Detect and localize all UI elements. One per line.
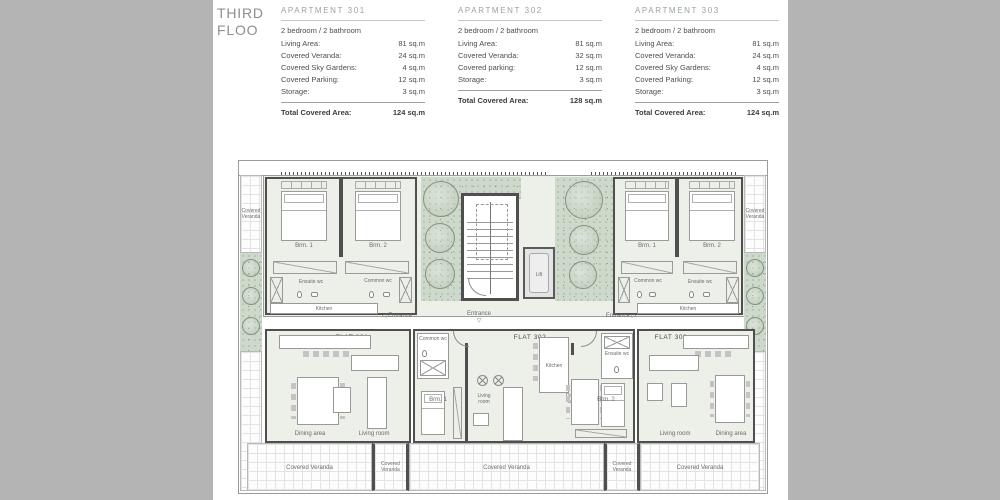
spec-row: Living Area:81 sq.m — [281, 38, 425, 50]
veranda-label: Veranda — [745, 214, 765, 220]
staircase — [461, 193, 519, 301]
covered-veranda-label: Veranda — [607, 467, 637, 473]
spec-row: Living Area:81 sq.m — [458, 38, 602, 50]
dining-area-label: Dining area — [707, 431, 755, 438]
shower — [399, 277, 412, 303]
spec-value: 81 sq.m — [398, 38, 425, 50]
common-wc-label: Common wc — [629, 278, 667, 284]
ensuite-wc-label: Ensuite wc — [285, 279, 337, 285]
arrow-right-icon: ▷ — [632, 313, 637, 319]
dining-chairs — [746, 381, 750, 417]
bar-stools — [303, 351, 351, 357]
headboard-shelf — [281, 181, 327, 189]
bedroom1-label: Brm. 1 — [617, 243, 677, 250]
toilet-icon — [614, 366, 619, 373]
bed — [625, 191, 669, 241]
center-left-sky-garden — [421, 177, 461, 301]
plant-icon — [493, 375, 504, 386]
spec-row: Covered Parking:12 sq.m — [281, 74, 425, 86]
spec-row: Storage:3 sq.m — [635, 86, 779, 98]
spec-label: Living Area: — [635, 38, 674, 50]
flat303-bedroom-wing: Brm. 1 Brm. 2 Common wc Ensuite wc Kitch… — [613, 177, 743, 315]
sofa — [351, 355, 399, 371]
spec-label: Covered Veranda: — [281, 50, 341, 62]
wardrobe — [453, 387, 462, 439]
bar-stools — [695, 351, 735, 357]
spec-value: 3 sq.m — [402, 86, 425, 98]
wardrobe — [345, 261, 409, 274]
dining-area-label: Dining area — [275, 431, 345, 438]
sink-icon — [311, 292, 318, 297]
floor-title-line1: THIRD — [217, 5, 264, 22]
left-veranda-top: Covered Veranda — [240, 175, 262, 253]
floor-title-line2: FLOO — [217, 22, 264, 39]
tree-icon — [425, 259, 455, 289]
spec-value: 12 sq.m — [398, 74, 425, 86]
wardrobe — [575, 429, 627, 438]
sofa — [503, 387, 523, 441]
floor-plan: Covered Veranda Covered Veranda — [238, 160, 768, 494]
spec-value: 81 sq.m — [575, 38, 602, 50]
door-swing — [468, 278, 486, 296]
spec-label: Covered Sky Gardens: — [281, 62, 357, 74]
wall — [675, 179, 679, 257]
spec-row: Covered Veranda:32 sq.m — [458, 50, 602, 62]
entrance-301: ◁ Entrance — [367, 313, 427, 320]
spec-label: Covered Parking: — [281, 74, 339, 86]
bed — [281, 191, 327, 241]
dining-table — [715, 375, 745, 423]
bed — [355, 191, 401, 241]
toilet-icon — [689, 291, 694, 298]
spec-label: Covered Parking: — [635, 74, 693, 86]
spec-value: 12 sq.m — [752, 74, 779, 86]
apartment-card-303: APARTMENT 3032 bedroom / 2 bathroomLivin… — [635, 6, 779, 119]
spec-value: 4 sq.m — [402, 62, 425, 74]
covered-veranda-label: Covered Veranda — [410, 465, 603, 472]
wardrobe — [273, 261, 337, 274]
spec-label: Covered Sky Gardens: — [635, 62, 711, 74]
spec-value: 24 sq.m — [752, 50, 779, 62]
tree-icon — [423, 181, 459, 217]
shower — [270, 277, 283, 303]
living-room-label: Living room — [647, 431, 703, 438]
tree-icon — [425, 223, 455, 253]
plant-icon — [477, 375, 488, 386]
veranda-label: Veranda — [241, 214, 261, 220]
apartment-card-301: APARTMENT 3012 bedroom / 2 bathroomLivin… — [281, 6, 425, 119]
spec-value: 24 sq.m — [398, 50, 425, 62]
entrance-302: Entrance ▽ — [451, 311, 507, 324]
wardrobe — [683, 261, 737, 274]
apartment-title: APARTMENT 302 — [458, 6, 602, 21]
spec-label: Storage: — [458, 74, 486, 86]
spec-label: Living Area: — [458, 38, 497, 50]
armchair — [647, 383, 663, 401]
spec-total-label: Total Covered Area: — [281, 107, 351, 119]
center-right-sky-garden — [555, 177, 615, 301]
spec-total-value: 128 sq.m — [570, 95, 602, 107]
bedroom1-label: Brm. 1 — [274, 243, 334, 250]
common-wc-label: Common wc — [418, 336, 448, 342]
spec-value: 3 sq.m — [756, 86, 779, 98]
spec-total-value: 124 sq.m — [747, 107, 779, 119]
left-sky-garden — [240, 253, 262, 351]
spec-label: Storage: — [281, 86, 309, 98]
spec-total-row: Total Covered Area:124 sq.m — [635, 102, 779, 119]
sofa — [367, 377, 387, 429]
tree-icon — [242, 287, 260, 305]
kitchen-label: Kitchen — [637, 306, 739, 312]
headboard-shelf — [625, 181, 669, 189]
veranda-302: Covered Veranda — [409, 443, 604, 491]
tree-icon — [242, 259, 260, 277]
spec-label: Living Area: — [281, 38, 320, 50]
spec-value: 81 sq.m — [752, 38, 779, 50]
covered-veranda-label: Covered Veranda — [248, 465, 371, 472]
tree-icon — [569, 261, 597, 289]
spec-row: Covered parking:12 sq.m — [458, 62, 602, 74]
entrance-303: Entrance ▷ — [591, 313, 651, 320]
wall — [465, 343, 468, 441]
apartment-subtitle: 2 bedroom / 2 bathroom — [635, 21, 779, 38]
viewer-background: { "page": { "title_line1": "THIRD", "tit… — [0, 0, 1000, 500]
arrow-left-icon: ◁ — [382, 313, 387, 319]
spec-value: 3 sq.m — [579, 74, 602, 86]
ensuite-wc-label: Ensuite wc — [675, 279, 725, 285]
tree-icon — [242, 317, 260, 335]
tree-icon — [565, 181, 603, 219]
shower — [726, 277, 739, 303]
bar-stools — [533, 343, 538, 381]
sink-icon — [703, 292, 710, 297]
covered-veranda-label: Covered Veranda — [641, 465, 759, 472]
bedroom2-label: Brm. 2 — [583, 397, 629, 404]
wardrobe — [621, 261, 673, 274]
coffee-table — [333, 387, 351, 413]
kitchen-label: Kitchen — [529, 363, 579, 369]
door-swing — [581, 331, 597, 347]
spec-row: Covered Parking:12 sq.m — [635, 74, 779, 86]
veranda-small-right: Covered Veranda — [604, 443, 640, 491]
spec-total-row: Total Covered Area:124 sq.m — [281, 102, 425, 119]
flat302-ensuite-wc: Ensuite wc — [601, 333, 633, 379]
spec-row: Covered Sky Gardens:4 sq.m — [635, 62, 779, 74]
toilet-icon — [297, 291, 302, 298]
veranda-303: Covered Veranda — [640, 443, 760, 491]
wall — [571, 343, 574, 355]
spec-label: Covered parking: — [458, 62, 515, 74]
tree-icon — [569, 225, 599, 255]
wall — [339, 179, 343, 257]
spec-value: 32 sq.m — [575, 50, 602, 62]
toilet-icon — [422, 350, 427, 357]
bedroom2-label: Brm. 2 — [682, 243, 742, 250]
flat302-wing: FLAT 302 Common wc Brm. 1 Livingroom — [413, 329, 635, 443]
spec-row: Storage:3 sq.m — [281, 86, 425, 98]
veranda-301: Covered Veranda — [247, 443, 372, 491]
covered-veranda-label: Veranda — [375, 467, 406, 473]
headboard-shelf — [689, 181, 735, 189]
dining-chairs — [566, 385, 570, 419]
arrow-down-icon: ▽ — [451, 318, 507, 324]
kitchen-counter — [683, 335, 749, 349]
apartment-title: APARTMENT 303 — [635, 6, 779, 21]
spec-row: Living Area:81 sq.m — [635, 38, 779, 50]
apartment-title: APARTMENT 301 — [281, 6, 425, 21]
coffee-table — [671, 383, 687, 407]
bedroom2-label: Brm. 2 — [348, 243, 408, 250]
sink-icon — [383, 292, 390, 297]
spec-row: Covered Veranda:24 sq.m — [635, 50, 779, 62]
armchair — [473, 413, 489, 426]
spec-label: Covered Veranda: — [635, 50, 695, 62]
spec-value: 12 sq.m — [575, 62, 602, 74]
spec-total-label: Total Covered Area: — [458, 95, 528, 107]
bed — [601, 383, 625, 427]
door-swing — [453, 331, 469, 347]
tree-icon — [746, 259, 764, 277]
kitchen-label: Kitchen — [270, 306, 378, 312]
flat301-bedroom-wing: Brm. 1 Brm. 2 Ensuite wc Common wc Kitch… — [265, 177, 417, 315]
veranda-small-left: Covered Veranda — [372, 443, 409, 491]
flat303-living-wing: FLAT 303 Living room Dining area — [637, 329, 755, 443]
stair-upper-flight — [476, 204, 508, 260]
lift-shaft: Lift — [523, 247, 555, 299]
bed — [689, 191, 735, 241]
dining-chairs — [710, 381, 714, 417]
spec-row: Covered Sky Gardens:4 sq.m — [281, 62, 425, 74]
apartment-subtitle: 2 bedroom / 2 bathroom — [458, 21, 602, 38]
spec-label: Covered Veranda: — [458, 50, 518, 62]
sofa — [649, 355, 699, 371]
spec-total-label: Total Covered Area: — [635, 107, 705, 119]
tree-icon — [746, 287, 764, 305]
bedroom1-label: Brm. 1 — [415, 397, 461, 404]
spec-value: 4 sq.m — [756, 62, 779, 74]
spec-label: Storage: — [635, 86, 663, 98]
dining-chairs — [291, 383, 296, 419]
headboard-shelf — [355, 181, 401, 189]
common-wc-label: Common wc — [359, 278, 397, 284]
sink-icon — [649, 292, 656, 297]
flat302-common-wc: Common wc — [417, 333, 449, 379]
brochure-page: THIRD FLOO APARTMENT 3012 bedroom / 2 ba… — [213, 0, 788, 500]
spec-row: Storage:3 sq.m — [458, 74, 602, 86]
shower — [604, 336, 630, 349]
spec-total-value: 124 sq.m — [393, 107, 425, 119]
toilet-icon — [369, 291, 374, 298]
ensuite-wc-label: Ensuite wc — [602, 351, 632, 357]
apartment-card-302: APARTMENT 3022 bedroom / 2 bathroomLivin… — [458, 6, 602, 107]
living-room-label: Living room — [343, 431, 405, 438]
flat301-living-wing: FLAT 301 Dining area Living room — [265, 329, 411, 443]
floor-title: THIRD FLOO — [217, 5, 264, 39]
apartment-subtitle: 2 bedroom / 2 bathroom — [281, 21, 425, 38]
spec-total-row: Total Covered Area:128 sq.m — [458, 90, 602, 107]
living-room-label: Livingroom — [463, 393, 505, 405]
kitchen-counter — [279, 335, 371, 349]
right-veranda-top: Covered Veranda — [744, 175, 766, 253]
toilet-icon — [637, 291, 642, 298]
shower — [420, 360, 446, 376]
spec-row: Covered Veranda:24 sq.m — [281, 50, 425, 62]
lift-label: Lift — [525, 272, 553, 278]
